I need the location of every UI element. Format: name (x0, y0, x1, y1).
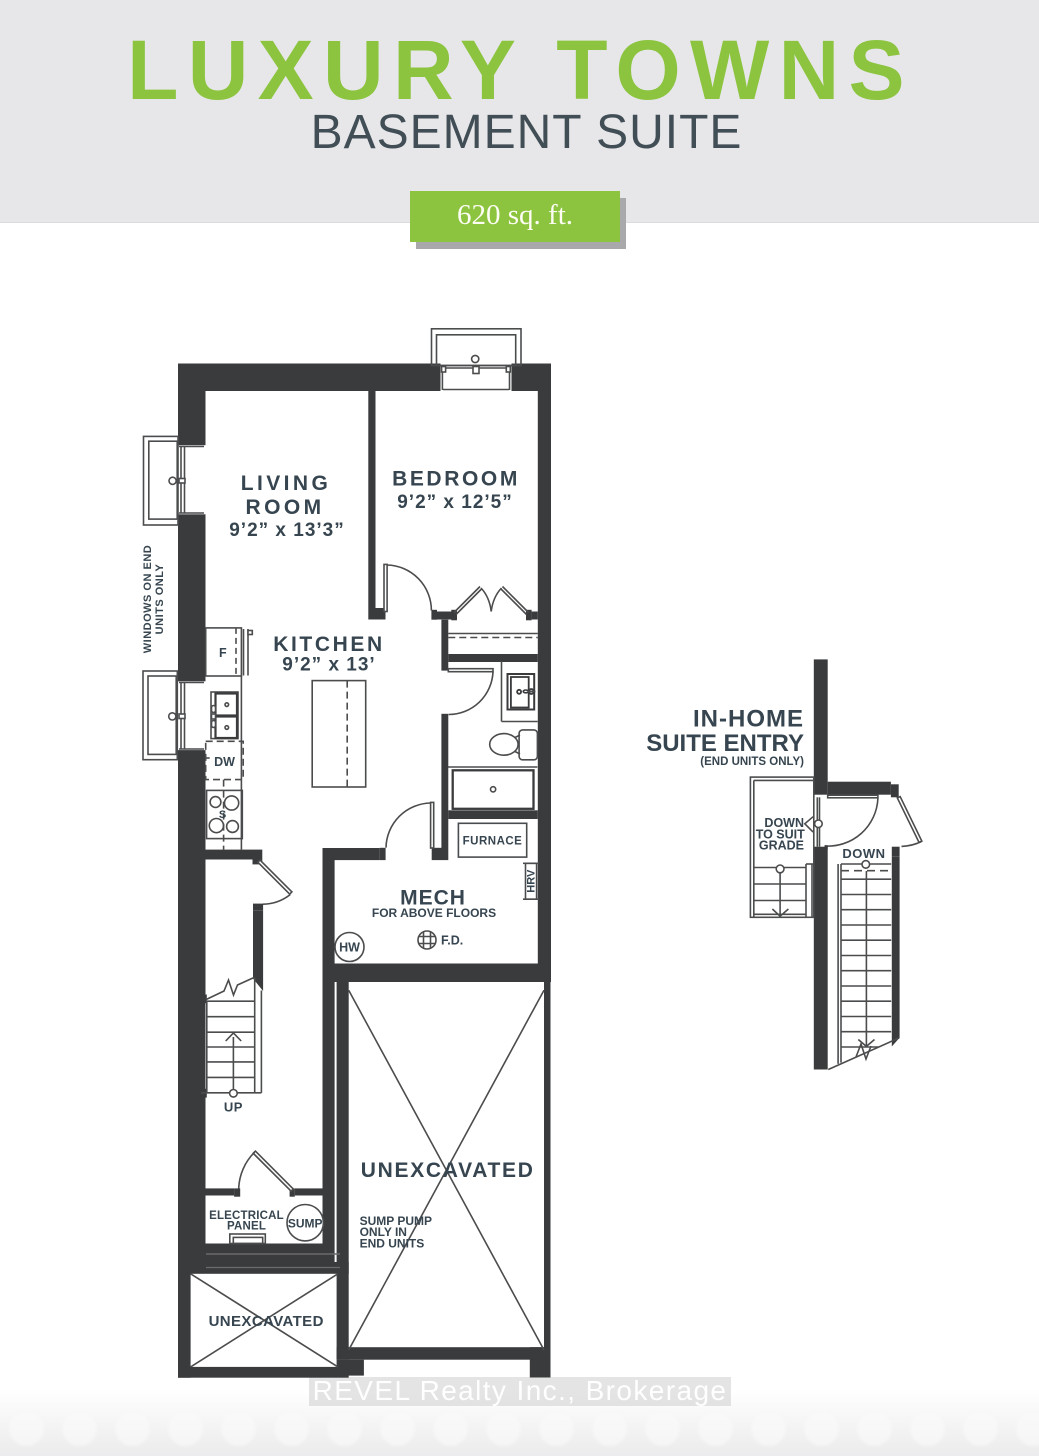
svg-text:9’2” x 13’3”: 9’2” x 13’3” (229, 520, 345, 541)
svg-text:FURNACE: FURNACE (463, 836, 523, 848)
svg-text:FOR ABOVE FLOORS: FOR ABOVE FLOORS (372, 906, 496, 920)
svg-text:END UNITS: END UNITS (360, 1237, 425, 1251)
svg-text:UP: UP (224, 1100, 243, 1115)
svg-text:SUITE ENTRY: SUITE ENTRY (646, 730, 804, 757)
svg-text:IN-HOME: IN-HOME (693, 706, 804, 733)
svg-text:SUMP: SUMP (288, 1217, 323, 1231)
svg-text:HW: HW (339, 941, 360, 955)
svg-text:UNEXCAVATED: UNEXCAVATED (361, 1159, 535, 1182)
svg-text:ROOM: ROOM (246, 496, 325, 519)
svg-text:GRADE: GRADE (759, 838, 804, 852)
svg-text:DOWN: DOWN (842, 846, 885, 861)
svg-text:S: S (219, 809, 226, 821)
svg-text:PANEL: PANEL (227, 1221, 266, 1233)
svg-text:UNEXCAVATED: UNEXCAVATED (209, 1313, 324, 1330)
svg-text:KITCHEN: KITCHEN (273, 633, 385, 656)
svg-text:LIVING: LIVING (241, 472, 331, 495)
svg-text:F.D.: F.D. (441, 934, 463, 948)
svg-text:9’2” x 13’: 9’2” x 13’ (282, 655, 375, 676)
svg-text:9’2” x 12’5”: 9’2” x 12’5” (397, 492, 513, 513)
svg-text:F: F (219, 646, 227, 660)
svg-text:BEDROOM: BEDROOM (392, 467, 520, 490)
svg-text:UNITS ONLY: UNITS ONLY (154, 564, 166, 635)
svg-text:HRV: HRV (526, 869, 538, 893)
svg-text:WINDOWS ON END: WINDOWS ON END (142, 545, 154, 653)
svg-text:(END UNITS ONLY): (END UNITS ONLY) (700, 756, 804, 768)
svg-text:DW: DW (214, 755, 235, 769)
